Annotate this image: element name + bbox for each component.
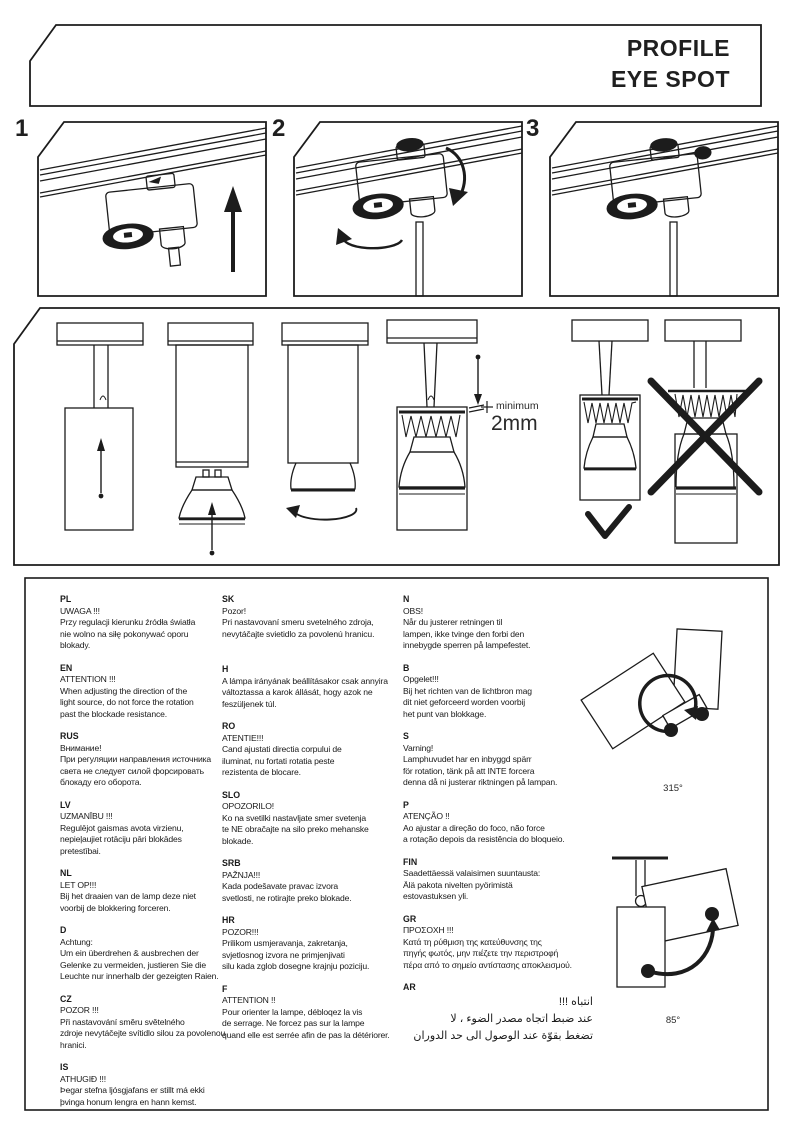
step-1-number: 1	[15, 115, 41, 143]
step2-track-illustration	[296, 126, 522, 195]
warning-item-slo: SLO OPOZORILO! Ko na svetilki nastavljat…	[222, 790, 398, 848]
language-code: SK	[222, 594, 398, 606]
instruction-sheet: PROFILE EYE SPOT 1 2 3 minimum 2mm PL UW…	[0, 0, 793, 1122]
language-code: HR	[222, 915, 398, 927]
warning-item-rus: RUS Внимание! При регуляции направления …	[60, 731, 220, 789]
language-code: F	[222, 984, 398, 996]
language-code: S	[403, 731, 593, 743]
warning-text: Achtung: Um ein überdrehen & ausbrechen …	[60, 937, 220, 983]
warning-item-is: IS ATHUGIÐ !!! Þegar stefna ljósgjafans …	[60, 1062, 220, 1108]
warning-text: Opgelet!!! Bij het richten van de lichtb…	[403, 674, 593, 720]
language-code: H	[222, 664, 398, 676]
warning-item-sk: SK Pozor! Pri nastavovaní smeru svetelné…	[222, 594, 398, 640]
language-code: GR	[403, 914, 593, 926]
warning-text: POZOR !!! Při nastavování směru světelné…	[60, 1005, 220, 1051]
product-title-line2: EYE SPOT	[300, 64, 730, 95]
step3-track-illustration	[552, 126, 778, 195]
warnings-column-1: PL UWAGA !!! Przy regulacji kierunku źró…	[60, 594, 220, 1119]
warning-item-p: P ATENÇÃO !! Ao ajustar a direção do foc…	[403, 800, 593, 846]
warning-text: PAŽNJA!!! Kada podešavate pravac izvora …	[222, 870, 398, 905]
warning-item-lv: LV UZMANĪBU !!! Regulējot gaismas avota …	[60, 800, 220, 858]
adj-bulb-rotate-diagram	[282, 323, 368, 520]
warning-item-b: B Opgelet!!! Bij het richten van de lich…	[403, 663, 593, 721]
warnings-column-3: N OBS! Når du justerer retningen til lam…	[403, 594, 593, 1056]
warning-item-pl: PL UWAGA !!! Przy regulacji kierunku źró…	[60, 594, 220, 652]
step1-track-illustration	[40, 128, 266, 197]
measurement-arrow-icon	[469, 355, 493, 413]
warning-text: Varning! Lamphuvudet har en inbyggd spär…	[403, 743, 593, 789]
adj-min-gap-diagram	[387, 320, 477, 530]
min-gap-label: minimum	[496, 400, 539, 412]
warning-item-hr: HR POZOR!!! Prilikom usmjeravanja, zakre…	[222, 915, 398, 973]
rotation-limit-vertical: 85°	[650, 1015, 696, 1026]
language-code: CZ	[60, 994, 220, 1006]
warning-item-ar: AR انتباه !!! عند ضبط اتجاه مصدر الضوء ،…	[403, 982, 593, 1045]
step1-up-arrow-icon	[224, 186, 242, 272]
warning-item-d: D Achtung: Um ein überdrehen & ausbreche…	[60, 925, 220, 983]
product-title: PROFILE EYE SPOT	[300, 33, 730, 95]
language-code: SRB	[222, 858, 398, 870]
warning-text: A lámpa irányának beállításakor csak ann…	[222, 676, 398, 711]
warning-item-n: N OBS! Når du justerer retningen til lam…	[403, 594, 593, 652]
warning-text: ATENTIE!!! Cand ajustati directia corpul…	[222, 733, 398, 779]
step-2-number: 2	[272, 115, 298, 143]
step2-rotation-ellipse-icon	[336, 228, 402, 248]
step-3-number: 3	[526, 115, 552, 143]
language-code: P	[403, 800, 593, 812]
warning-text: LET OP!!! Bij het draaien van de lamp de…	[60, 880, 220, 915]
language-code: AR	[403, 982, 593, 994]
warning-item-nl: NL LET OP!!! Bij het draaien van de lamp…	[60, 868, 220, 914]
language-code: D	[60, 925, 220, 937]
adj-slide-diagram	[57, 323, 143, 530]
warning-text: OBS! Når du justerer retningen til lampe…	[403, 606, 593, 652]
step2-rotate-arrow-icon	[446, 148, 468, 206]
language-code: RUS	[60, 731, 220, 743]
adj-bulb-insert-diagram	[168, 323, 253, 555]
rotation-315-diagram	[581, 629, 722, 749]
warning-item-f: F ATTENTION !! Pour orienter la lampe, d…	[222, 984, 398, 1042]
warning-text: UWAGA !!! Przy regulacji kierunku źródła…	[60, 606, 220, 652]
language-code: NL	[60, 868, 220, 880]
language-code: FIN	[403, 857, 593, 869]
language-code: RO	[222, 721, 398, 733]
rotation-85-diagram	[612, 858, 738, 987]
warning-item-h: H A lámpa irányának beállításakor csak a…	[222, 664, 398, 710]
warning-text: Pozor! Pri nastavovaní smeru svetelného …	[222, 606, 398, 641]
step2-stem	[416, 222, 423, 296]
rotation-limit-horizontal: 315°	[650, 783, 696, 794]
warning-item-fin: FIN Saadettäessä valaisimen suuntausta: …	[403, 857, 593, 903]
language-code: LV	[60, 800, 220, 812]
language-code: PL	[60, 594, 220, 606]
step3-stem	[670, 222, 677, 296]
warning-text: ATTENTION !! Pour orienter la lampe, déb…	[222, 995, 398, 1041]
warning-item-srb: SRB PAŽNJA!!! Kada podešavate pravac izv…	[222, 858, 398, 904]
language-code: B	[403, 663, 593, 675]
warning-text: ATTENTION !!! When adjusting the directi…	[60, 674, 220, 720]
step1-adapter-illustration	[97, 171, 201, 272]
warning-item-gr: GR ΠΡΟΣΟΧΗ !!! Κατά τη ρύθμιση της κατεύ…	[403, 914, 593, 972]
language-code: EN	[60, 663, 220, 675]
min-gap-value: 2mm	[491, 412, 538, 436]
warning-text: ATHUGIÐ !!! Þegar stefna ljósgjafans er …	[60, 1074, 220, 1109]
warning-item-ro: RO ATENTIE!!! Cand ajustati directia cor…	[222, 721, 398, 779]
warning-text: انتباه !!! عند ضبط اتجاه مصدر الضوء ، لا…	[403, 994, 593, 1045]
check-icon	[588, 507, 629, 536]
step2-adapter-illustration	[347, 135, 450, 223]
warning-item-en: EN ATTENTION !!! When adjusting the dire…	[60, 663, 220, 721]
warnings-column-2: SK Pozor! Pri nastavovaní smeru svetelné…	[222, 594, 398, 1052]
warning-item-s: S Varning! Lamphuvudet har en inbyggd sp…	[403, 731, 593, 789]
warning-item-cz: CZ POZOR !!! Při nastavování směru světe…	[60, 994, 220, 1052]
warning-text: POZOR!!! Prilikom usmjeravanja, zakretan…	[222, 927, 398, 973]
warning-text: Saadettäessä valaisimen suuntausta: Älä …	[403, 868, 593, 903]
language-code: IS	[60, 1062, 220, 1074]
warning-text: ATENÇÃO !! Ao ajustar a direção do foco,…	[403, 811, 593, 846]
cross-icon	[651, 381, 759, 492]
warning-text: UZMANĪBU !!! Regulējot gaismas avota vir…	[60, 811, 220, 857]
adj-correct-diagram	[572, 320, 648, 500]
language-code: SLO	[222, 790, 398, 802]
warning-text: ΠΡΟΣΟΧΗ !!! Κατά τη ρύθμιση της κατεύθυν…	[403, 925, 593, 971]
language-code: N	[403, 594, 593, 606]
warning-text: Внимание! При регуляции направления исто…	[60, 743, 220, 789]
product-title-line1: PROFILE	[300, 33, 730, 64]
warning-text: OPOZORILO! Ko na svetilki nastavljate sm…	[222, 801, 398, 847]
